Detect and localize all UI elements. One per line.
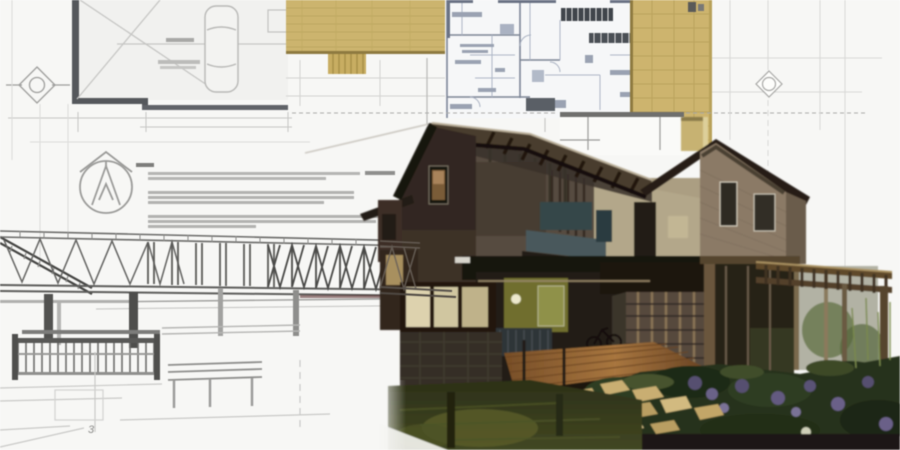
svg-text:3: 3 (88, 424, 95, 436)
